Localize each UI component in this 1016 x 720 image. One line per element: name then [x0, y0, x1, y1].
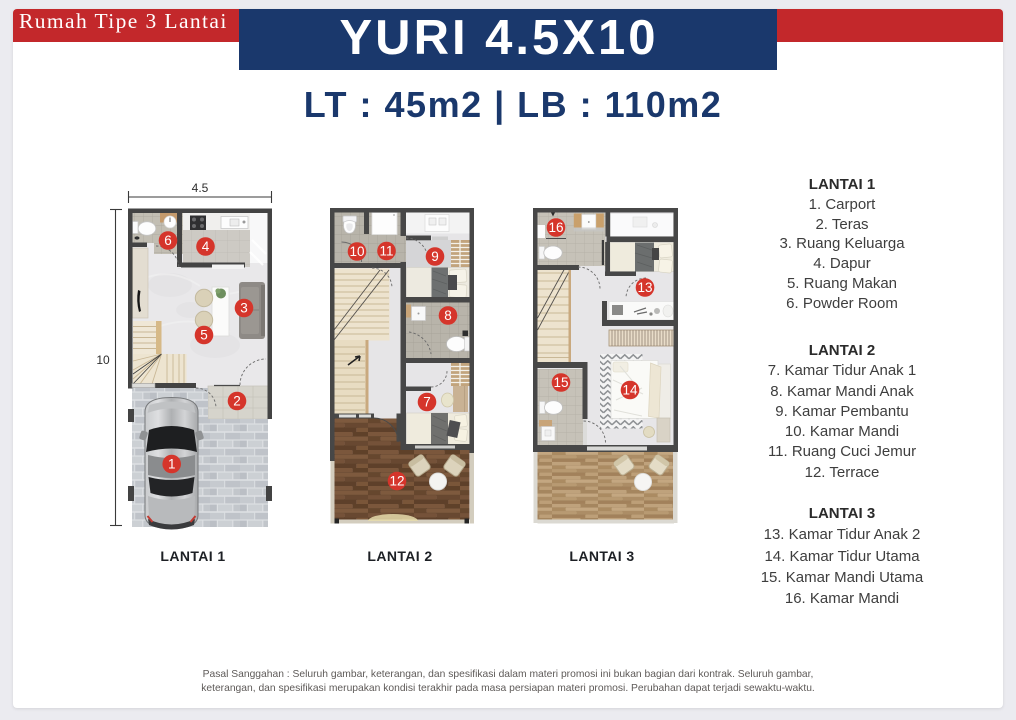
svg-text:14: 14 — [622, 383, 638, 398]
svg-text:2: 2 — [233, 394, 241, 409]
svg-text:3: 3 — [240, 301, 248, 316]
svg-text:11: 11 — [379, 244, 393, 259]
svg-text:4.5: 4.5 — [192, 181, 209, 195]
svg-text:12: 12 — [389, 474, 404, 489]
svg-text:6: 6 — [164, 233, 172, 248]
svg-text:8: 8 — [444, 308, 452, 323]
svg-text:13: 13 — [637, 280, 652, 295]
svg-text:9: 9 — [431, 249, 439, 264]
svg-text:10: 10 — [349, 244, 364, 259]
svg-text:4: 4 — [202, 239, 210, 254]
svg-text:1: 1 — [168, 457, 176, 472]
svg-text:15: 15 — [553, 375, 568, 390]
svg-text:5: 5 — [200, 328, 208, 343]
svg-text:16: 16 — [548, 220, 563, 235]
svg-text:7: 7 — [423, 395, 431, 410]
svg-text:10: 10 — [96, 353, 110, 367]
